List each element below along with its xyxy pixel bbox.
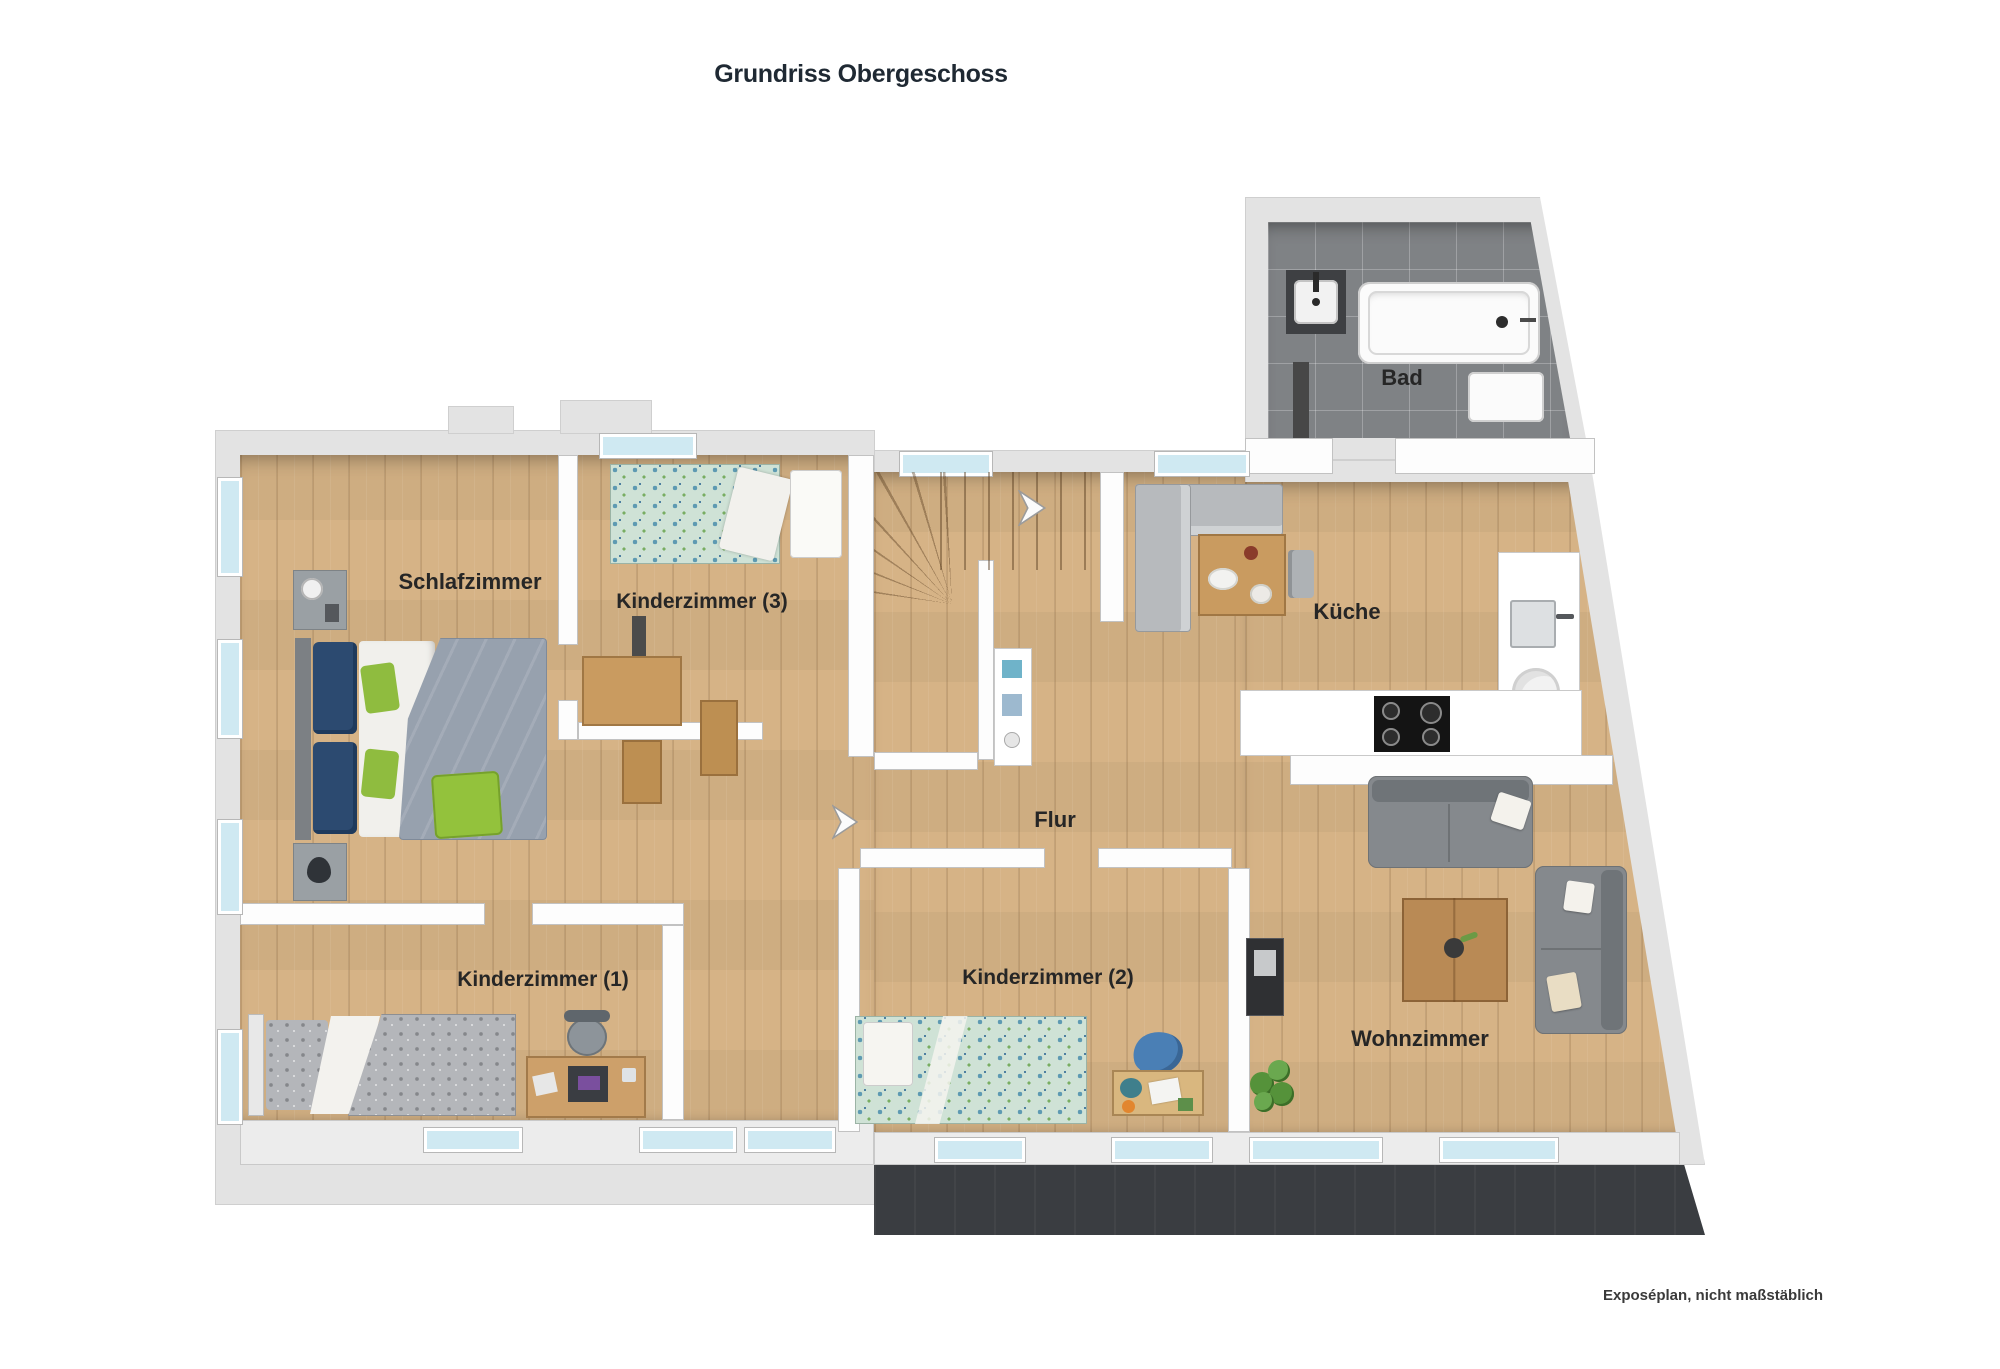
floorplan-page: { "title": { "text": "Grundriss Obergesc… xyxy=(0,0,2000,1369)
window xyxy=(1440,1138,1558,1162)
scale-disclaimer: Exposéplan, nicht maßstäblich xyxy=(1603,1287,1823,1304)
pillow-green xyxy=(360,662,400,714)
terrace xyxy=(874,1165,1705,1235)
window xyxy=(1250,1138,1382,1162)
window xyxy=(1112,1138,1212,1162)
plant xyxy=(1248,1058,1296,1114)
kitchen-counter xyxy=(1240,690,1582,756)
plant-sprig xyxy=(1460,931,1479,943)
single-bed xyxy=(610,464,848,564)
wall xyxy=(1245,438,1333,474)
table-item xyxy=(1122,1100,1135,1113)
nightstand-item xyxy=(307,857,331,883)
hall-shelf xyxy=(994,648,1032,766)
door-leaf xyxy=(700,700,738,776)
shelf-decor xyxy=(1002,660,1022,678)
window xyxy=(1155,452,1249,476)
single-bed xyxy=(248,1014,516,1116)
desk-chair xyxy=(560,1010,614,1058)
double-bed xyxy=(295,638,547,840)
plate xyxy=(1250,584,1272,604)
coffee-table xyxy=(1402,898,1508,1002)
room-label-kinderzimmer-1: Kinderzimmer (1) xyxy=(457,968,629,992)
chair-back xyxy=(564,1010,610,1022)
bath-privacy-wall xyxy=(1293,362,1309,438)
wall xyxy=(848,455,874,757)
sofa-pillow xyxy=(1563,880,1595,914)
window xyxy=(218,1030,242,1124)
sofa-seam xyxy=(1448,804,1450,862)
wall xyxy=(558,700,578,740)
vanity xyxy=(1286,270,1346,334)
staircase-winders xyxy=(874,472,952,604)
window xyxy=(935,1138,1025,1162)
room-label-flur: Flur xyxy=(1034,807,1076,833)
table-item xyxy=(1178,1098,1193,1111)
shelf-decor xyxy=(1004,732,1020,748)
shelf-decor xyxy=(1002,694,1022,716)
dining-table xyxy=(1198,534,1286,616)
window xyxy=(600,434,696,458)
bathtub xyxy=(1358,282,1540,364)
pillow-blue xyxy=(313,642,357,734)
faucet xyxy=(1313,272,1319,292)
dining-chair xyxy=(1288,550,1314,598)
wall xyxy=(860,848,1045,868)
wall xyxy=(874,752,978,770)
wall xyxy=(1098,848,1232,868)
window xyxy=(424,1128,522,1152)
room-label-kueche: Küche xyxy=(1313,599,1380,625)
headboard xyxy=(248,1014,264,1116)
lamp xyxy=(301,578,323,600)
wall xyxy=(662,925,684,1120)
desk-item xyxy=(578,1076,600,1090)
pillow-white xyxy=(863,1022,913,1086)
sofa xyxy=(1368,776,1533,868)
nightstand xyxy=(293,843,347,901)
chimney-bump xyxy=(560,400,652,434)
wall-bump xyxy=(448,406,514,434)
desk-item xyxy=(622,1068,636,1082)
page-title: Grundriss Obergeschoss xyxy=(714,60,1008,89)
pillow-white xyxy=(790,470,842,558)
chair-seat xyxy=(567,1018,607,1056)
headboard xyxy=(295,638,311,840)
entrance-arrow-icon xyxy=(1018,490,1046,531)
door-leaf xyxy=(622,740,662,804)
sofa xyxy=(1535,866,1627,1034)
toilet xyxy=(1468,372,1544,422)
room-label-kinderzimmer-2: Kinderzimmer (2) xyxy=(962,966,1134,990)
wall xyxy=(558,455,578,645)
plate xyxy=(1208,568,1238,590)
faucet xyxy=(1556,614,1574,619)
window xyxy=(640,1128,736,1152)
nightstand-item xyxy=(325,604,339,622)
room-label-schlafzimmer: Schlafzimmer xyxy=(398,569,541,595)
desk xyxy=(526,1056,646,1118)
room-label-kinderzimmer-3: Kinderzimmer (3) xyxy=(616,590,788,614)
table-item xyxy=(1244,546,1258,560)
sofa-pillow xyxy=(1546,972,1582,1013)
tv-sideboard xyxy=(1246,938,1284,1016)
kitchen-sink xyxy=(1510,600,1556,648)
cooktop xyxy=(1374,696,1450,752)
blanket-green xyxy=(431,771,503,840)
wall xyxy=(1100,472,1124,622)
nightstand xyxy=(293,570,347,630)
wall xyxy=(1395,438,1595,474)
faucet xyxy=(1520,318,1536,322)
entrance-arrow-icon xyxy=(832,802,858,847)
window xyxy=(218,478,242,576)
desk-item xyxy=(532,1072,558,1096)
drain xyxy=(1312,298,1320,306)
corner-bench xyxy=(1135,484,1191,632)
window xyxy=(218,640,242,738)
pillow-green xyxy=(361,748,400,799)
tv-item xyxy=(1254,950,1276,976)
sofa-back xyxy=(1601,870,1623,1030)
wall xyxy=(240,903,485,925)
window xyxy=(218,820,242,914)
room-label-bad: Bad xyxy=(1381,365,1423,391)
window xyxy=(745,1128,835,1152)
room-label-wohnzimmer: Wohnzimmer xyxy=(1351,1026,1489,1052)
table-item xyxy=(1120,1078,1142,1098)
wall xyxy=(532,903,684,925)
dresser xyxy=(582,656,682,726)
sofa-seam xyxy=(1541,948,1601,950)
kids-table xyxy=(1112,1070,1204,1116)
pillow-blue xyxy=(313,742,357,834)
wall xyxy=(978,560,994,760)
table-item xyxy=(1148,1078,1181,1105)
drain xyxy=(1496,316,1508,328)
single-bed xyxy=(855,1016,1087,1124)
